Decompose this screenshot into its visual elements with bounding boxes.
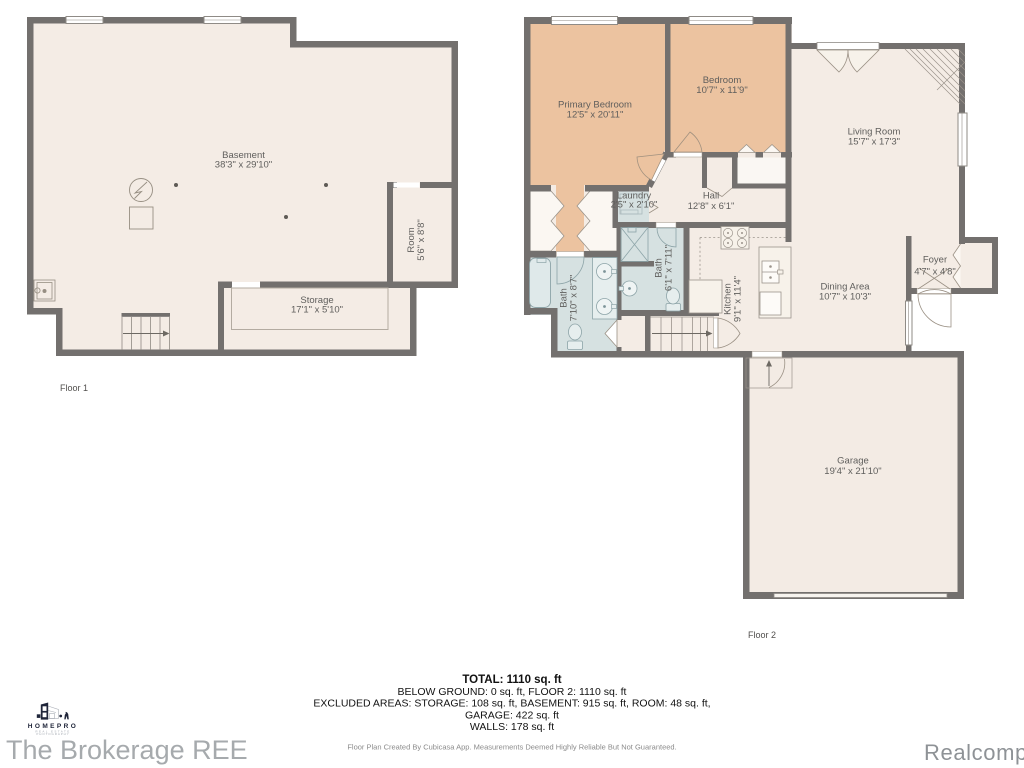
svg-text:17'1" x 5'10": 17'1" x 5'10" [291, 305, 343, 316]
svg-text:The Brokerage REE: The Brokerage REE [6, 735, 248, 765]
svg-text:12'8" x 6'1": 12'8" x 6'1" [688, 201, 735, 212]
svg-text:10'7" x 10'3": 10'7" x 10'3" [819, 292, 871, 303]
svg-text:Garage: Garage [837, 456, 869, 467]
svg-text:WALLS: 178 sq. ft: WALLS: 178 sq. ft [470, 721, 554, 733]
svg-text:Floor 1: Floor 1 [60, 383, 88, 393]
svg-text:Realcomp: Realcomp [924, 740, 1024, 765]
svg-text:TOTAL: 1110 sq. ft: TOTAL: 1110 sq. ft [462, 674, 561, 686]
svg-text:4'7" x 4'8": 4'7" x 4'8" [914, 267, 956, 278]
svg-text:12'5" x 20'11": 12'5" x 20'11" [567, 110, 624, 121]
svg-text:15'7" x 17'3": 15'7" x 17'3" [848, 137, 900, 148]
svg-text:EXCLUDED AREAS: STORAGE: 108 s: EXCLUDED AREAS: STORAGE: 108 sq. ft, BAS… [313, 698, 710, 710]
svg-text:GARAGE: 422 sq. ft: GARAGE: 422 sq. ft [465, 710, 559, 722]
svg-text:10'7" x 11'9": 10'7" x 11'9" [696, 85, 747, 96]
svg-text:Floor 2: Floor 2 [748, 630, 776, 640]
svg-text:5'6" x 8'8": 5'6" x 8'8" [416, 219, 427, 261]
svg-text:19'4" x 21'10": 19'4" x 21'10" [824, 466, 881, 477]
svg-text:BELOW GROUND: 0 sq. ft, FLOOR: BELOW GROUND: 0 sq. ft, FLOOR 2: 1110 sq… [398, 686, 627, 698]
svg-text:2'5" x 2'10": 2'5" x 2'10" [611, 200, 658, 211]
svg-text:Foyer: Foyer [923, 255, 947, 266]
svg-text:9'1" x 11'4": 9'1" x 11'4" [733, 276, 744, 322]
svg-text:6'1" x 7'11": 6'1" x 7'11" [664, 245, 675, 291]
svg-text:38'3" x 29'10": 38'3" x 29'10" [215, 160, 272, 171]
svg-text:Hall: Hall [703, 191, 719, 202]
svg-text:7'10" x 8'7": 7'10" x 8'7" [569, 275, 580, 322]
svg-text:Floor Plan Created By Cubicasa: Floor Plan Created By Cubicasa App. Meas… [347, 743, 676, 752]
